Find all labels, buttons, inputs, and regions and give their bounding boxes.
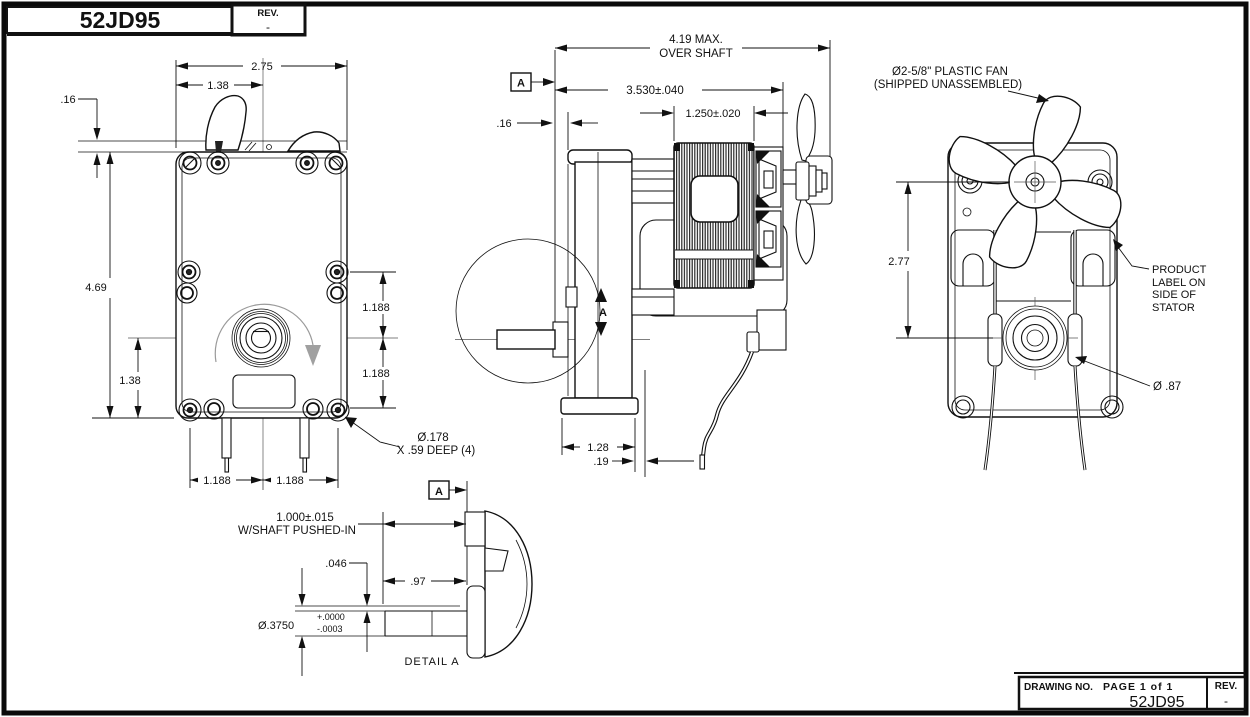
svg-text:SIDE OF: SIDE OF xyxy=(1152,289,1196,301)
svg-text:1.38: 1.38 xyxy=(207,80,228,92)
svg-text:Ø2-5/8" PLASTIC FAN: Ø2-5/8" PLASTIC FAN xyxy=(892,66,1008,78)
svg-text:X .59 DEEP (4): X .59 DEEP (4) xyxy=(397,445,476,457)
part-number: 52JD95 xyxy=(80,7,161,33)
svg-text:1.188: 1.188 xyxy=(362,368,390,380)
drawing-no-label: DRAWING NO. xyxy=(1024,682,1093,693)
svg-text:+.0000: +.0000 xyxy=(317,612,345,622)
svg-text:.046: .046 xyxy=(325,558,346,570)
strain-relief xyxy=(747,332,759,352)
bearing-flange xyxy=(467,586,485,658)
cord-exit-box xyxy=(757,310,786,350)
title-block-bottom: DRAWING NO. PAGE 1 of 1 52JD95 REV. - xyxy=(1014,673,1245,711)
engineering-drawing: 52JD95 REV. - xyxy=(0,0,1250,717)
svg-text:A: A xyxy=(599,307,607,319)
svg-text:1.28: 1.28 xyxy=(587,442,608,454)
output-shaft-front xyxy=(232,309,290,367)
fan-nut xyxy=(822,173,827,189)
motor-shaft-stub xyxy=(783,170,797,184)
drawing-no-value: 52JD95 xyxy=(1129,694,1184,711)
svg-text:1.250±.020: 1.250±.020 xyxy=(686,108,741,120)
svg-text:.16: .16 xyxy=(496,118,511,130)
rev-value: - xyxy=(266,20,270,34)
svg-text:4.69: 4.69 xyxy=(85,282,106,294)
nameplate xyxy=(233,375,295,408)
page-label: PAGE 1 of 1 xyxy=(1103,681,1173,693)
svg-text:1.188: 1.188 xyxy=(362,302,390,314)
fan-hub-side xyxy=(796,162,809,200)
wire-sleeve-left xyxy=(988,314,1002,366)
svg-text:Ø .87: Ø .87 xyxy=(1153,381,1181,393)
svg-text:LABEL ON: LABEL ON xyxy=(1152,277,1205,289)
svg-text:A: A xyxy=(517,78,525,90)
drawing-sheet: 52JD95 REV. - xyxy=(0,0,1250,717)
svg-text:2.77: 2.77 xyxy=(888,256,909,268)
rev-label-bottom: REV. xyxy=(1215,681,1238,692)
svg-text:A: A xyxy=(435,486,443,498)
svg-text:.16: .16 xyxy=(60,94,75,106)
cord-pin xyxy=(700,455,705,469)
svg-text:4.19 MAX.: 4.19 MAX. xyxy=(669,34,723,46)
rev-label: REV. xyxy=(257,8,278,19)
end-bell xyxy=(754,147,783,280)
svg-text:OVER SHAFT: OVER SHAFT xyxy=(659,48,732,60)
svg-text:1.188: 1.188 xyxy=(203,475,231,487)
stator-window xyxy=(691,176,738,222)
stator xyxy=(674,143,754,288)
title-block-top: 52JD95 REV. - xyxy=(7,5,306,35)
svg-text:(SHIPPED UNASSEMBLED): (SHIPPED UNASSEMBLED) xyxy=(874,79,1022,91)
rev-value-bottom: - xyxy=(1224,694,1228,708)
svg-text:1.000±.015: 1.000±.015 xyxy=(276,512,333,524)
svg-text:.19: .19 xyxy=(593,456,608,468)
svg-text:3.530±.040: 3.530±.040 xyxy=(626,85,683,97)
svg-text:Ø.3750: Ø.3750 xyxy=(258,620,294,632)
svg-text:W/SHAFT PUSHED-IN: W/SHAFT PUSHED-IN xyxy=(238,525,356,537)
svg-text:Ø.178: Ø.178 xyxy=(417,432,448,444)
svg-text:1.38: 1.38 xyxy=(119,375,140,387)
svg-text:.97: .97 xyxy=(410,576,425,588)
detail-title: DETAIL A xyxy=(404,656,459,668)
svg-text:2.75: 2.75 xyxy=(251,61,272,73)
svg-text:PRODUCT: PRODUCT xyxy=(1152,264,1207,276)
svg-text:1.188: 1.188 xyxy=(276,475,304,487)
svg-text:STATOR: STATOR xyxy=(1152,302,1195,314)
output-shaft-side xyxy=(497,330,555,349)
svg-text:-.0003: -.0003 xyxy=(317,624,343,634)
